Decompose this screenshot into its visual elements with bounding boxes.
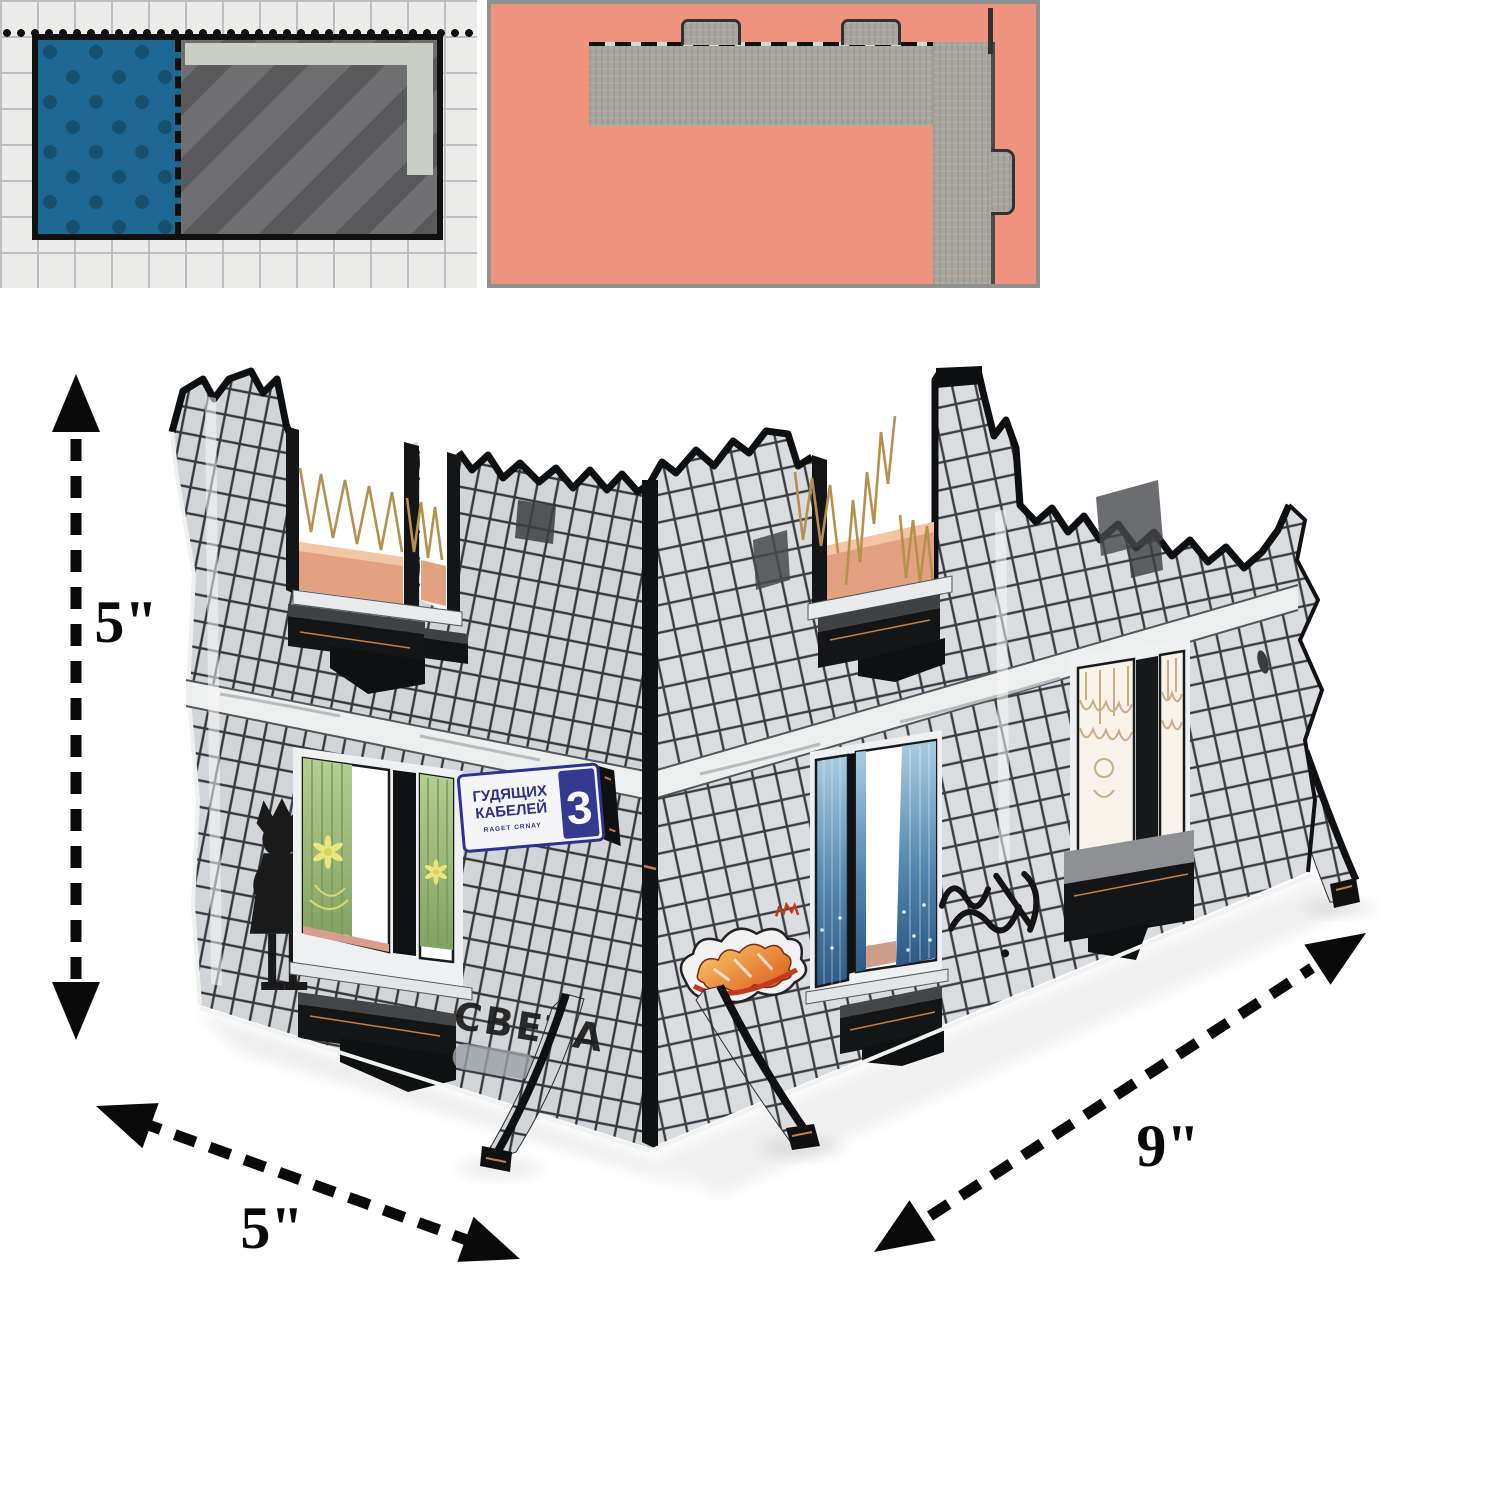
footprint-panel — [487, 0, 1040, 288]
footprint-side-tab — [991, 149, 1015, 215]
plan-gray-hatched-zone — [181, 40, 437, 234]
arrowhead-left — [88, 1083, 159, 1148]
floor-plan-panel — [0, 0, 477, 288]
product-image: СВЕТА ГУДЯЩИХ КАБЕЛЕЙ RAGET CRNAY 3 — [0, 0, 1500, 1500]
plan-blue-dotted-zone — [38, 40, 181, 234]
plan-wall-band-top — [185, 43, 433, 65]
depth-label: 5" — [240, 1195, 303, 1261]
arrowhead-down — [52, 982, 100, 1040]
length-label: 9" — [1136, 1113, 1199, 1179]
ruined-upper-window-right — [795, 416, 952, 682]
height-label: 5" — [94, 589, 157, 655]
footprint-tab-1 — [681, 19, 741, 45]
footprint-long-wall — [589, 42, 989, 126]
plan-outline-rect — [32, 34, 443, 240]
footprint-edge-line — [988, 8, 993, 54]
arrowhead-left — [861, 1200, 936, 1272]
arrowhead-right — [457, 1217, 528, 1282]
building-render: СВЕТА ГУДЯЩИХ КАБЕЛЕЙ RAGET CRNAY 3 — [0, 290, 1500, 1500]
street-sign-number: 3 — [564, 781, 594, 835]
height-dimension: 5" — [52, 374, 158, 1040]
lace-curtain-window — [1064, 638, 1194, 960]
footprint-tab-2 — [841, 19, 901, 45]
footprint-short-wall — [933, 42, 995, 284]
arrowhead-up — [52, 374, 100, 432]
green-curtain-window — [290, 747, 472, 1092]
corner-edge — [642, 480, 658, 1150]
plan-wall-band-right — [407, 43, 433, 175]
